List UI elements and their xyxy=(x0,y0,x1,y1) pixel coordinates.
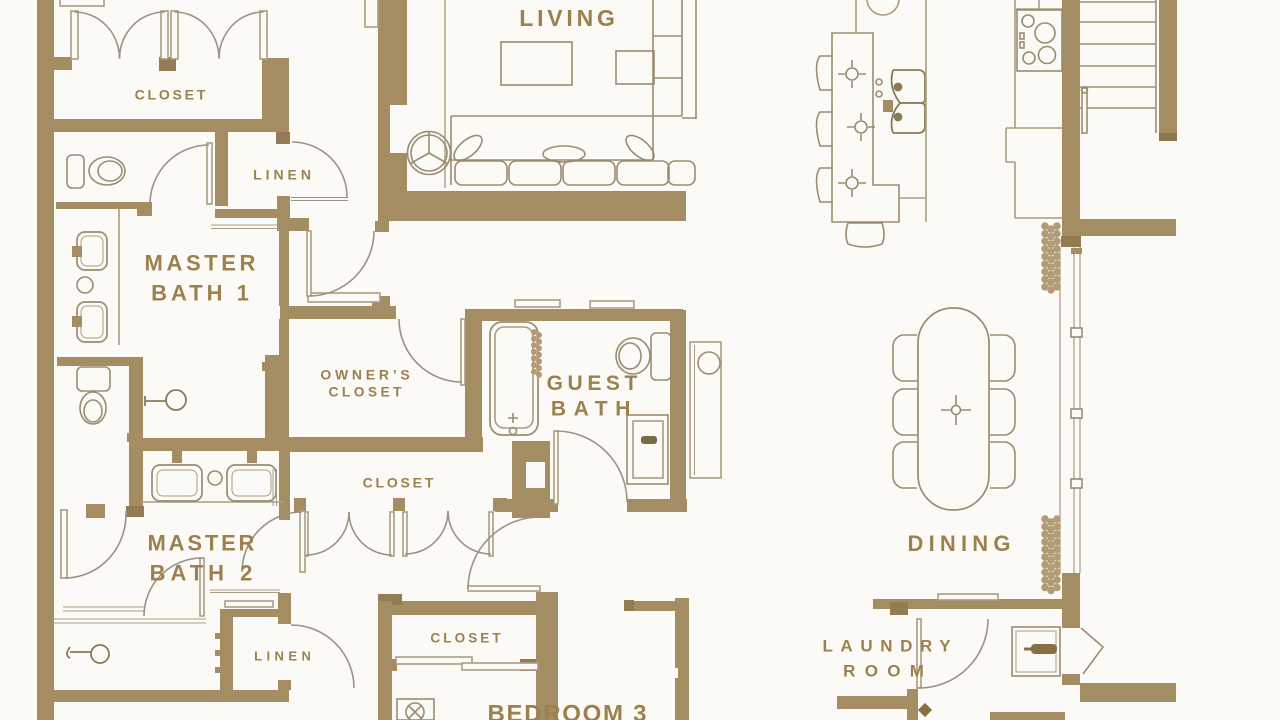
svg-text:BEDROOM 3: BEDROOM 3 xyxy=(487,701,648,720)
svg-text:LINEN: LINEN xyxy=(254,649,315,664)
svg-text:LIVING: LIVING xyxy=(519,5,618,31)
svg-text:BATH 1: BATH 1 xyxy=(151,281,253,306)
svg-text:ROOM: ROOM xyxy=(843,662,933,681)
svg-text:BATH: BATH xyxy=(551,398,638,421)
svg-text:GUEST: GUEST xyxy=(547,372,642,395)
svg-text:BATH 2: BATH 2 xyxy=(150,561,258,586)
svg-text:LINEN: LINEN xyxy=(253,167,315,183)
svg-text:OWNER’S: OWNER’S xyxy=(320,367,413,383)
svg-text:CLOSET: CLOSET xyxy=(430,631,503,646)
svg-text:CLOSET: CLOSET xyxy=(329,385,405,400)
svg-text:MASTER: MASTER xyxy=(148,531,258,556)
svg-text:DINING: DINING xyxy=(907,531,1015,556)
svg-text:MASTER: MASTER xyxy=(145,251,260,276)
svg-text:CLOSET: CLOSET xyxy=(363,475,437,491)
svg-text:CLOSET: CLOSET xyxy=(135,87,209,103)
svg-text:LAUNDRY: LAUNDRY xyxy=(822,637,958,656)
